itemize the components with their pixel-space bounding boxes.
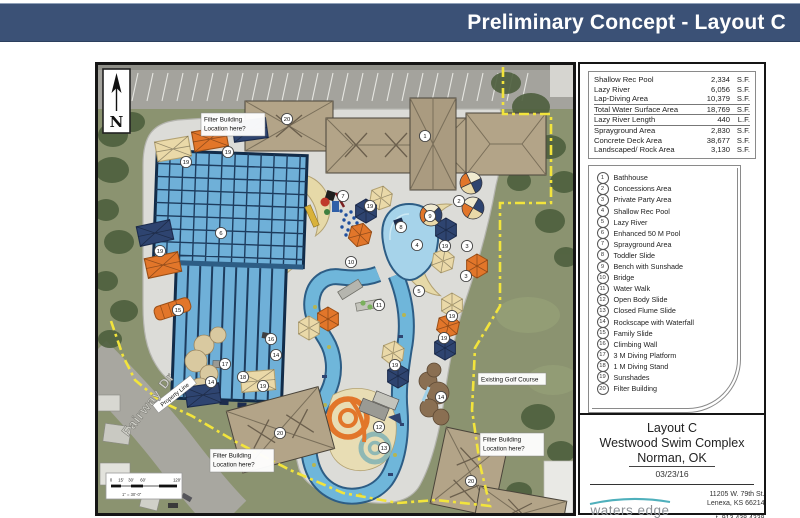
firm-address: 11205 W. 79th St. Lenexa, KS 66214 t. 91… [683, 490, 767, 518]
svg-text:Filter Building: Filter Building [483, 437, 522, 444]
svg-text:12: 12 [376, 425, 382, 431]
stats-label: Concrete Deck Area [594, 136, 694, 146]
legend-item: 15Family Slide [597, 328, 733, 339]
svg-text:10: 10 [348, 260, 354, 266]
stats-row: Landscaped/ Rock Area3,130S.F. [594, 145, 750, 155]
svg-text:2: 2 [457, 199, 460, 205]
plan-marker-2: 2 [453, 195, 464, 206]
svg-text:19: 19 [449, 314, 455, 320]
stats-unit: S.F. [730, 85, 750, 95]
svg-text:17: 17 [222, 362, 228, 368]
legend-item: 173 M Diving Platform [597, 350, 733, 361]
plan-marker-16: 16 [265, 333, 276, 344]
plan-marker-4: 4 [411, 239, 422, 250]
legend-label: Private Party Area [614, 195, 672, 204]
plan-marker-11: 11 [373, 299, 384, 310]
stats-row: Total Water Surface Area18,769S.F. [594, 104, 750, 115]
stats-row: Concrete Deck Area38,677S.F. [594, 136, 750, 146]
project-city: Norman, OK [588, 451, 756, 466]
plan-marker-10: 10 [345, 256, 356, 267]
stats-unit: S.F. [730, 75, 750, 85]
legend-label: Sprayground Area [614, 240, 672, 249]
plan-marker-19: 19 [438, 332, 449, 343]
plan-marker-3: 3 [460, 270, 471, 281]
svg-text:5: 5 [417, 289, 420, 295]
legend-item: 9Bench with Sunshade [597, 261, 733, 272]
svg-text:16: 16 [268, 337, 274, 343]
svg-text:19: 19 [225, 150, 231, 156]
legend-label: Open Body Slide [614, 295, 668, 304]
filter-building-label-3: Filter BuildingLocation here? [480, 433, 544, 456]
site-plan-drawing: Filter BuildingLocation here?Filter Buil… [98, 65, 573, 513]
existing-golf-course-label: Existing Golf Course [478, 373, 546, 385]
plan-marker-19: 19 [180, 156, 191, 167]
svg-text:14: 14 [273, 353, 280, 359]
svg-text:14: 14 [208, 380, 215, 386]
legend-label: Lazy River [614, 218, 648, 227]
title-block: Layout C Westwood Swim Complex Norman, O… [580, 413, 764, 518]
page: Preliminary Concept - Layout C [0, 0, 800, 518]
stats-row: Lazy River6,056S.F. [594, 85, 750, 95]
svg-text:15: 15 [175, 308, 181, 314]
stats-unit: S.F. [730, 145, 750, 155]
scale-note: 1" = 30'-0" [122, 492, 142, 497]
plan-marker-14: 14 [270, 349, 281, 360]
project-name: Westwood Swim Complex [588, 436, 756, 451]
stats-label: Shallow Rec Pool [594, 75, 694, 85]
legend-number: 11 [597, 283, 609, 295]
stats-value: 38,677 [694, 136, 730, 146]
legend-item: 10Bridge [597, 272, 733, 283]
legend-label: Filter Building [614, 384, 658, 393]
stats-row: Shallow Rec Pool2,334S.F. [594, 75, 750, 85]
svg-text:8: 8 [399, 225, 402, 231]
legend-label: Rockscape with Waterfall [614, 318, 694, 327]
scale-bar: 015'30'60'120' 1" = 30'-0" [106, 473, 182, 499]
plan-marker-17: 17 [219, 358, 230, 369]
legend-item: 2Concessions Area [597, 183, 733, 194]
legend-label: Concessions Area [614, 184, 672, 193]
legend-label: Toddler Slide [614, 251, 656, 260]
north-label: N [110, 113, 124, 131]
legend-item: 12Open Body Slide [597, 294, 733, 305]
svg-text:19: 19 [441, 336, 447, 342]
svg-text:19: 19 [442, 244, 448, 250]
plan-marker-8: 8 [395, 221, 406, 232]
legend-label: Family Slide [614, 329, 653, 338]
plan-marker-5: 5 [413, 285, 424, 296]
legend-number: 1 [597, 172, 609, 184]
stats-value: 2,830 [694, 126, 730, 136]
stats-label: Landscaped/ Rock Area [594, 145, 694, 155]
legend-item: 16Climbing Wall [597, 339, 733, 350]
svg-text:3: 3 [465, 244, 468, 250]
legend-item: 8Toddler Slide [597, 250, 733, 261]
svg-text:Location here?: Location here? [213, 462, 255, 469]
legend-label: 3 M Diving Platform [614, 351, 677, 360]
plan-marker-19: 19 [154, 245, 165, 256]
stats-value: 3,130 [694, 145, 730, 155]
stats-label: Lap-Diving Area [594, 94, 694, 104]
plan-marker-12: 12 [373, 421, 384, 432]
plan-marker-19: 19 [364, 200, 375, 211]
filter-building-label-1: Filter BuildingLocation here? [201, 113, 265, 136]
stats-value: 2,334 [694, 75, 730, 85]
stats-label: Total Water Surface Area [594, 105, 694, 115]
svg-text:60': 60' [140, 478, 146, 483]
legend-item: 20Filter Building [597, 383, 733, 394]
plan-marker-19: 19 [446, 310, 457, 321]
stats-label: Lazy River [594, 85, 694, 95]
stats-unit: S.F. [730, 136, 750, 146]
plan-marker-14: 14 [435, 391, 446, 402]
adjacent-roof [550, 65, 573, 97]
svg-text:19: 19 [392, 363, 398, 369]
firm-block: waters edge AQUATIC DESIGN 11205 W. 79th… [588, 485, 756, 518]
plan-marker-19: 19 [222, 146, 233, 157]
svg-text:19: 19 [260, 384, 266, 390]
plan-marker-13: 13 [378, 442, 389, 453]
legend-label: Shallow Rec Pool [614, 207, 670, 216]
legend-number: 20 [597, 383, 609, 395]
legend-label: Water Walk [614, 284, 651, 293]
logo-name: waters edge [590, 505, 669, 517]
svg-text:15': 15' [118, 478, 124, 483]
address-line-2: Lenexa, KS 66214 [683, 499, 765, 508]
legend-item: 3Private Party Area [597, 194, 733, 205]
north-arrow: N [103, 69, 130, 133]
svg-text:13: 13 [381, 446, 387, 452]
svg-text:1: 1 [423, 134, 426, 140]
stats-value: 440 [694, 115, 730, 125]
legend-item: 6Enhanced 50 M Pool [597, 228, 733, 239]
svg-text:19: 19 [157, 249, 163, 255]
info-panel: Shallow Rec Pool2,334S.F.Lazy River6,056… [578, 62, 766, 515]
legend-item: 19Sunshades [597, 372, 733, 383]
stats-unit: S.F. [730, 126, 750, 136]
legend-number: 10 [597, 272, 609, 284]
plan-marker-19: 19 [389, 359, 400, 370]
legend-label: 1 M Diving Stand [614, 362, 669, 371]
svg-text:7: 7 [341, 194, 344, 200]
plan-marker-3: 3 [461, 240, 472, 251]
plan-marker-14: 14 [205, 376, 216, 387]
plan-marker-9: 9 [424, 210, 435, 221]
legend-label: Closed Flume Slide [614, 306, 676, 315]
plan-marker-15: 15 [172, 304, 183, 315]
svg-text:6: 6 [219, 231, 222, 237]
legend-box: 1Bathhouse2Concessions Area3Private Part… [588, 165, 741, 413]
svg-text:Location here?: Location here? [483, 446, 525, 453]
legend-label: Climbing Wall [614, 340, 658, 349]
firm-phone: t. 913.438.4338 [683, 514, 765, 518]
svg-text:20: 20 [284, 117, 290, 123]
legend-label: Bench with Sunshade [614, 262, 684, 271]
stats-label: Sprayground Area [594, 126, 694, 136]
legend-item: 14Rockscape with Waterfall [597, 316, 733, 327]
plan-marker-6: 6 [215, 227, 226, 238]
svg-text:14: 14 [438, 395, 445, 401]
svg-text:Filter Building: Filter Building [213, 453, 252, 460]
stats-unit: S.F. [730, 94, 750, 104]
svg-text:Existing Golf Course: Existing Golf Course [481, 377, 539, 384]
plan-marker-19: 19 [257, 380, 268, 391]
stats-unit: L.F. [730, 115, 750, 125]
svg-text:Filter Building: Filter Building [204, 117, 243, 124]
stats-row: Lap-Diving Area10,379S.F. [594, 94, 750, 104]
legend-items: 1Bathhouse2Concessions Area3Private Part… [592, 168, 738, 409]
stats-value: 18,769 [694, 105, 730, 115]
plan-marker-18: 18 [237, 371, 248, 382]
sheet-date: 03/23/16 [588, 469, 756, 479]
stats-value: 6,056 [694, 85, 730, 95]
legend-item: 181 M Diving Stand [597, 361, 733, 372]
sheet-title: Layout C [588, 421, 756, 436]
legend-label: Bathhouse [614, 173, 648, 182]
legend-item: 1Bathhouse [597, 172, 733, 183]
legend-item: 5Lazy River [597, 217, 733, 228]
svg-text:19: 19 [183, 160, 189, 166]
plan-marker-7: 7 [337, 190, 348, 201]
legend-item: 7Sprayground Area [597, 239, 733, 250]
svg-text:Location here?: Location here? [204, 126, 246, 133]
svg-text:20: 20 [277, 431, 283, 437]
svg-text:3: 3 [464, 274, 467, 280]
legend-number: 9 [597, 261, 609, 273]
svg-text:11: 11 [376, 303, 382, 309]
address-line-1: 11205 W. 79th St. [683, 490, 765, 499]
title-banner: Preliminary Concept - Layout C [0, 3, 800, 42]
legend-number: 8 [597, 249, 609, 261]
legend-label: Enhanced 50 M Pool [614, 229, 681, 238]
legend-item: 13Closed Flume Slide [597, 305, 733, 316]
svg-text:18: 18 [240, 375, 246, 381]
plan-marker-20: 20 [281, 113, 292, 124]
svg-text:30': 30' [128, 478, 134, 483]
legend-label: Sunshades [614, 373, 650, 382]
legend-item: 11Water Walk [597, 283, 733, 294]
stats-row: Lazy River Length440L.F. [594, 114, 750, 125]
plan-marker-20: 20 [465, 475, 476, 486]
stats-unit: S.F. [730, 105, 750, 115]
svg-text:19: 19 [367, 204, 373, 210]
plan-marker-1: 1 [419, 130, 430, 141]
svg-text:9: 9 [428, 214, 431, 220]
legend-number: 19 [597, 371, 609, 383]
plan-marker-19: 19 [439, 240, 450, 251]
legend-label: Bridge [614, 273, 635, 282]
svg-text:120': 120' [173, 478, 181, 483]
stats-label: Lazy River Length [594, 115, 694, 125]
plan-marker-20: 20 [274, 427, 285, 438]
waters-edge-logo: waters edge AQUATIC DESIGN [588, 497, 672, 518]
svg-text:20: 20 [468, 479, 474, 485]
filter-building-label-2: Filter BuildingLocation here? [210, 449, 274, 472]
area-stats-table: Shallow Rec Pool2,334S.F.Lazy River6,056… [588, 71, 756, 159]
banner-title: Preliminary Concept - Layout C [467, 11, 800, 35]
stats-row: Sprayground Area2,830S.F. [594, 125, 750, 136]
stats-value: 10,379 [694, 94, 730, 104]
site-plan-frame: Filter BuildingLocation here?Filter Buil… [95, 62, 576, 516]
legend-item: 4Shallow Rec Pool [597, 206, 733, 217]
